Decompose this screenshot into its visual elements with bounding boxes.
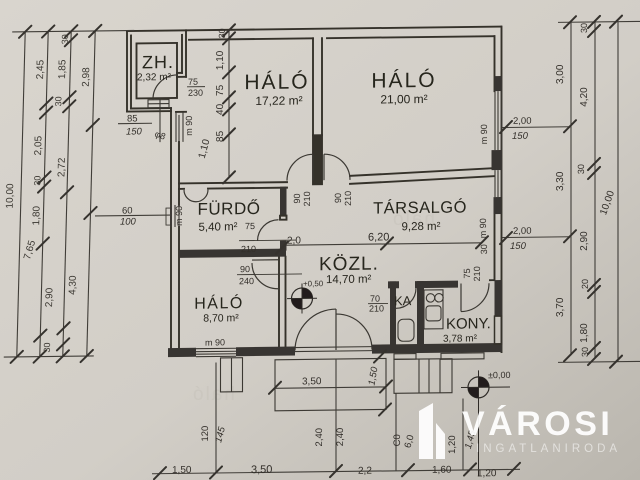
svg-text:90: 90	[292, 193, 302, 203]
svg-text:2,2: 2,2	[358, 466, 372, 477]
svg-text:150: 150	[126, 126, 143, 137]
svg-text:2,00: 2,00	[513, 226, 531, 237]
svg-text:2,40: 2,40	[335, 428, 346, 447]
svg-text:1,60: 1,60	[432, 465, 452, 476]
svg-text:30: 30	[32, 176, 42, 186]
svg-text:120: 120	[200, 426, 211, 442]
svg-text:210: 210	[343, 191, 353, 206]
svg-text:14,70 m²: 14,70 m²	[326, 274, 372, 287]
svg-text:70: 70	[370, 294, 380, 304]
svg-text:2,45: 2,45	[35, 59, 47, 79]
svg-text:85: 85	[127, 113, 138, 124]
svg-text:2,00: 2,00	[513, 116, 531, 127]
svg-text:230: 230	[188, 88, 203, 98]
svg-text:30: 30	[576, 164, 586, 174]
svg-text:3,70: 3,70	[555, 297, 566, 317]
svg-text:1,20: 1,20	[447, 435, 458, 454]
svg-text:30: 30	[580, 347, 590, 357]
svg-text:21,00 m²: 21,00 m²	[380, 92, 427, 107]
svg-text:210: 210	[302, 191, 312, 206]
svg-text:1,80: 1,80	[579, 323, 590, 343]
svg-text:3,00: 3,00	[555, 64, 566, 84]
svg-text:m 90: m 90	[184, 116, 194, 136]
svg-text:90: 90	[240, 264, 250, 274]
svg-text:210: 210	[241, 244, 256, 254]
svg-text:HÁLÓ: HÁLÓ	[194, 293, 244, 313]
svg-text:75: 75	[462, 268, 472, 278]
svg-text:m 90: m 90	[174, 206, 184, 226]
svg-text:m 90: m 90	[478, 218, 488, 238]
svg-text:30: 30	[42, 342, 52, 352]
svg-text:240: 240	[239, 276, 254, 286]
svg-text:TÁRSALGÓ: TÁRSALGÓ	[373, 197, 467, 217]
svg-text:6,20: 6,20	[368, 231, 389, 243]
svg-text:30: 30	[53, 96, 63, 106]
svg-text:2,0: 2,0	[287, 235, 301, 246]
svg-text:9,28 m²: 9,28 m²	[402, 221, 441, 233]
svg-text:210: 210	[369, 303, 384, 313]
svg-text:210: 210	[472, 266, 482, 281]
svg-text:C0: C0	[392, 434, 403, 446]
svg-text:4,20: 4,20	[579, 87, 590, 107]
svg-text:2,72: 2,72	[56, 157, 68, 177]
svg-text:1,20: 1,20	[477, 468, 497, 479]
svg-text:17,22 m²: 17,22 m²	[255, 93, 302, 108]
svg-text:3,78 m²: 3,78 m²	[443, 333, 478, 344]
svg-text:ZH.: ZH.	[142, 52, 174, 72]
svg-text:2,40: 2,40	[314, 428, 325, 447]
svg-text:FÜRDŐ: FÜRDŐ	[198, 199, 261, 219]
svg-text:1,80: 1,80	[31, 205, 43, 225]
svg-text:85: 85	[215, 130, 226, 142]
svg-text:2,90: 2,90	[579, 231, 590, 251]
svg-text:3,50: 3,50	[251, 464, 272, 476]
svg-text:KONY.: KONY.	[446, 315, 491, 333]
svg-text:+0,50: +0,50	[303, 279, 324, 288]
svg-text:2,32 m²: 2,32 m²	[137, 72, 172, 83]
svg-text:75: 75	[245, 221, 255, 231]
svg-text:20: 20	[580, 279, 590, 289]
svg-text:90: 90	[333, 193, 343, 203]
svg-text:VÁROSI: VÁROSI	[462, 405, 613, 443]
svg-text:30: 30	[579, 23, 589, 33]
svg-text:m 90: m 90	[205, 337, 225, 347]
svg-text:2,98: 2,98	[81, 67, 93, 87]
svg-text:4,30: 4,30	[67, 275, 79, 295]
svg-text:30: 30	[60, 34, 70, 44]
svg-text:2,05: 2,05	[33, 135, 45, 155]
svg-text:10,00: 10,00	[5, 183, 17, 209]
svg-text:75: 75	[188, 77, 198, 87]
svg-text:75: 75	[215, 84, 226, 96]
svg-text:haló: haló	[191, 384, 235, 405]
svg-text:150: 150	[510, 241, 527, 252]
svg-text:1,85: 1,85	[57, 59, 69, 79]
svg-text:5,40 m²: 5,40 m²	[199, 221, 238, 233]
svg-text:100: 100	[120, 216, 137, 227]
svg-text:1,10: 1,10	[215, 50, 226, 70]
svg-text:m 90: m 90	[479, 124, 489, 144]
svg-text:40: 40	[215, 103, 226, 115]
svg-text:8,70 m²: 8,70 m²	[203, 312, 239, 324]
svg-text:150: 150	[512, 131, 529, 142]
svg-text:KÖZL.: KÖZL.	[319, 254, 379, 276]
svg-text:2,90: 2,90	[44, 287, 56, 307]
svg-text:3,50: 3,50	[302, 376, 322, 387]
svg-text:HÁLÓ: HÁLÓ	[371, 69, 436, 93]
svg-text:1,50: 1,50	[172, 465, 192, 476]
svg-text:HÁLÓ: HÁLÓ	[244, 70, 309, 94]
svg-text:60: 60	[122, 205, 133, 216]
svg-text:30: 30	[217, 28, 227, 38]
svg-text:30: 30	[479, 244, 489, 254]
svg-text:±0,00: ±0,00	[488, 370, 510, 380]
svg-text:KA: KA	[394, 293, 412, 308]
svg-text:3,30: 3,30	[555, 171, 566, 191]
svg-text:INGATLANIRODA: INGATLANIRODA	[476, 443, 621, 455]
